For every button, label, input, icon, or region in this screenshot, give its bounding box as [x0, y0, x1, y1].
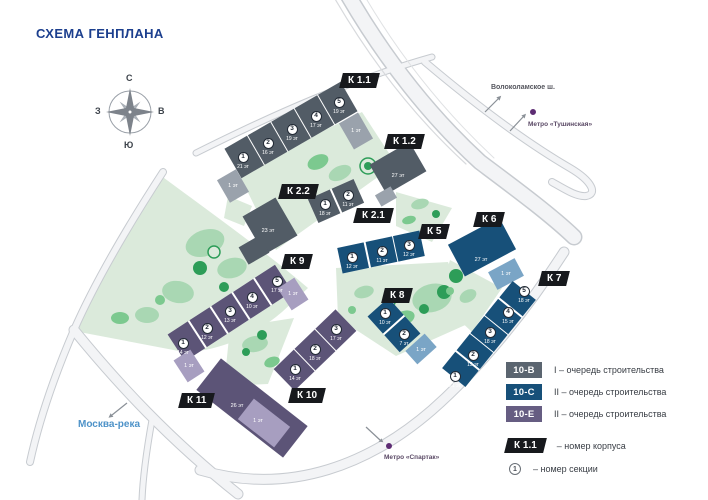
- korpus-tag-k8[interactable]: К 8: [381, 288, 413, 303]
- legend-desc: – номер корпуса: [557, 441, 626, 451]
- legend-swatch-10s: 10-С: [506, 384, 542, 400]
- section-marker[interactable]: 211 эт: [331, 190, 365, 208]
- river-label: Москва-река: [78, 419, 140, 430]
- section-floors: 12 эт: [201, 335, 213, 341]
- korpus-tag-label: К 8: [390, 290, 404, 301]
- section-floors: 16 эт: [262, 150, 274, 156]
- legend-desc: – номер секции: [533, 464, 598, 474]
- section-number: 2: [377, 246, 388, 257]
- section-floors: 19 эт: [286, 136, 298, 142]
- section-number: 4: [311, 111, 322, 122]
- legend-row-korpus: К 1.1 – номер корпуса: [506, 438, 666, 453]
- annex-floors: 1 эт: [253, 418, 263, 424]
- legend-row-phase1: 10-В I – очередь строительства: [506, 362, 666, 378]
- korpus-tag-k2-1[interactable]: К 2.1: [353, 208, 394, 223]
- section-floors: 10 эт: [246, 304, 258, 310]
- compass-east-label: В: [158, 106, 165, 116]
- section-marker[interactable]: 114 эт: [278, 364, 312, 382]
- korpus-tag-label: К 11: [187, 395, 206, 406]
- section-marker[interactable]: 218 эт: [298, 344, 332, 362]
- section-number: 1: [347, 252, 358, 263]
- korpus-tag-k5[interactable]: К 5: [418, 224, 450, 239]
- section-number: 5: [334, 97, 345, 108]
- korpus-tag-k1-1[interactable]: К 1.1: [339, 73, 380, 88]
- section-marker[interactable]: 519 эт: [322, 97, 356, 115]
- section-marker[interactable]: 312 эт: [392, 240, 426, 258]
- section-number: 3: [287, 124, 298, 135]
- korpus-tag-k7[interactable]: К 7: [538, 271, 570, 286]
- annex-floors: 1 эт: [228, 183, 238, 189]
- section-number: 2: [310, 344, 321, 355]
- building-floors: 26 эт: [231, 403, 244, 409]
- legend-desc: II – очередь строительства: [554, 387, 666, 397]
- korpus-tag-k1-2[interactable]: К 1.2: [384, 134, 425, 149]
- section-number: 3: [331, 324, 342, 335]
- section-number: 2: [399, 329, 410, 340]
- section-number: 1: [290, 364, 301, 375]
- section-number: 4: [247, 292, 258, 303]
- section-floors: 21 эт: [449, 383, 461, 389]
- section-floors: 18 эт: [309, 356, 321, 362]
- page-title: СХЕМА ГЕНПЛАНА: [36, 26, 164, 41]
- section-marker[interactable]: 212 эт: [190, 323, 224, 341]
- section-floors: 11 эт: [342, 202, 353, 208]
- section-number: 1: [320, 199, 331, 210]
- section-floors: 14 эт: [289, 376, 301, 382]
- section-floors: 19 эт: [333, 109, 345, 115]
- korpus-tag-label: К 1.2: [393, 136, 416, 147]
- section-number: 2: [202, 323, 213, 334]
- section-marker[interactable]: 27 эт: [387, 329, 421, 347]
- legend-swatch-10e: 10-Е: [506, 406, 542, 422]
- section-marker[interactable]: 415 эт: [491, 307, 525, 325]
- korpus-tag-k11[interactable]: К 11: [178, 393, 215, 408]
- section-number: 3: [225, 306, 236, 317]
- legend-row-section: 1 – номер секции: [506, 463, 666, 475]
- annex-floors: 1 эт: [501, 271, 511, 277]
- metro-spartak-label: Метро «Спартак»: [384, 454, 439, 461]
- section-number: 4: [503, 307, 514, 318]
- section-number: 2: [263, 138, 274, 149]
- section-floors: 17 эт: [310, 123, 322, 129]
- section-marker[interactable]: 112 эт: [335, 252, 369, 270]
- metro-tushinskaya-icon: [530, 109, 536, 115]
- legend-section-circle: 1: [509, 463, 521, 475]
- annex-floors: 1 эт: [416, 347, 426, 353]
- genplan-scheme: СХЕМА ГЕНПЛАНА С В З Ю 121 эт: [0, 0, 708, 500]
- section-floors: 14 эт: [177, 350, 189, 356]
- building-floors: 23 эт: [262, 228, 275, 234]
- korpus-tag-label: К 5: [427, 226, 441, 237]
- section-marker[interactable]: 110 эт: [368, 308, 402, 326]
- highway-label: Волоколамское ш.: [491, 84, 555, 91]
- legend: 10-В I – очередь строительства 10-С II –…: [506, 362, 666, 475]
- section-number: 2: [468, 350, 479, 361]
- annex-floors: 1 эт: [288, 291, 298, 297]
- compass-north-label: С: [126, 73, 133, 83]
- building-floors: 27 эт: [475, 257, 488, 263]
- section-marker[interactable]: 121 эт: [438, 371, 472, 389]
- section-number: 3: [485, 327, 496, 338]
- section-number: 5: [519, 286, 530, 297]
- section-floors: 17 эт: [330, 336, 342, 342]
- korpus-tag-k2-2[interactable]: К 2.2: [278, 184, 319, 199]
- legend-row-phase3: 10-Е II – очередь строительства: [506, 406, 666, 422]
- section-marker[interactable]: 318 эт: [473, 327, 507, 345]
- korpus-tag-k6[interactable]: К 6: [473, 212, 505, 227]
- section-marker[interactable]: 518 эт: [507, 286, 541, 304]
- legend-desc: II – очередь строительства: [554, 409, 666, 419]
- legend-desc: I – очередь строительства: [554, 365, 664, 375]
- section-floors: 17 эт: [271, 288, 283, 294]
- metro-tushinskaya-label: Метро «Тушинская»: [528, 121, 592, 128]
- section-marker[interactable]: 410 эт: [235, 292, 269, 310]
- korpus-tag-label: К 1.1: [348, 75, 371, 86]
- legend-korpus-tag: К 1.1: [504, 438, 547, 453]
- legend-swatch-10v: 10-В: [506, 362, 542, 378]
- metro-spartak-icon: [386, 443, 392, 449]
- building-floors: 27 эт: [392, 173, 405, 179]
- section-floors: 18 эт: [319, 211, 331, 217]
- legend-row-phase2: 10-С II – очередь строительства: [506, 384, 666, 400]
- section-number: 1: [450, 371, 461, 382]
- korpus-tag-label: К 2.2: [287, 186, 310, 197]
- korpus-tag-k9[interactable]: К 9: [281, 254, 313, 269]
- compass-south-label: Ю: [124, 140, 133, 150]
- section-floors: 15 эт: [467, 362, 479, 368]
- section-floors: 18 эт: [518, 298, 530, 304]
- section-floors: 7 эт: [400, 341, 409, 347]
- korpus-tag-label: К 7: [547, 273, 561, 284]
- section-marker[interactable]: 317 эт: [319, 324, 353, 342]
- korpus-tag-label: К 6: [482, 214, 496, 225]
- section-floors: 12 эт: [403, 252, 415, 258]
- compass-rose-icon: [106, 88, 154, 136]
- legend-korpus-tag-label: К 1.1: [514, 440, 537, 451]
- section-floors: 15 эт: [502, 319, 514, 325]
- park-greenery: [74, 112, 502, 386]
- section-number: 1: [238, 152, 249, 163]
- section-floors: 12 эт: [346, 264, 358, 270]
- section-number: 1: [380, 308, 391, 319]
- section-number: 1: [178, 338, 189, 349]
- korpus-tag-label: К 2.1: [362, 210, 385, 221]
- section-floors: 18 эт: [484, 339, 496, 345]
- compass-west-label: З: [95, 106, 101, 116]
- section-floors: 13 эт: [224, 318, 236, 324]
- section-floors: 10 эт: [379, 320, 391, 326]
- korpus-tag-k10[interactable]: К 10: [288, 388, 326, 403]
- annex-floors: 1 эт: [351, 128, 361, 134]
- korpus-tag-label: К 10: [297, 390, 317, 401]
- section-number: 5: [272, 276, 283, 287]
- section-marker[interactable]: 215 эт: [456, 350, 490, 368]
- section-number: 3: [404, 240, 415, 251]
- section-floors: 11 эт: [376, 258, 387, 264]
- section-number: 2: [343, 190, 354, 201]
- annex-floors: 1 эт: [184, 363, 194, 369]
- korpus-tag-label: К 9: [290, 256, 304, 267]
- section-floors: 21 эт: [237, 164, 249, 170]
